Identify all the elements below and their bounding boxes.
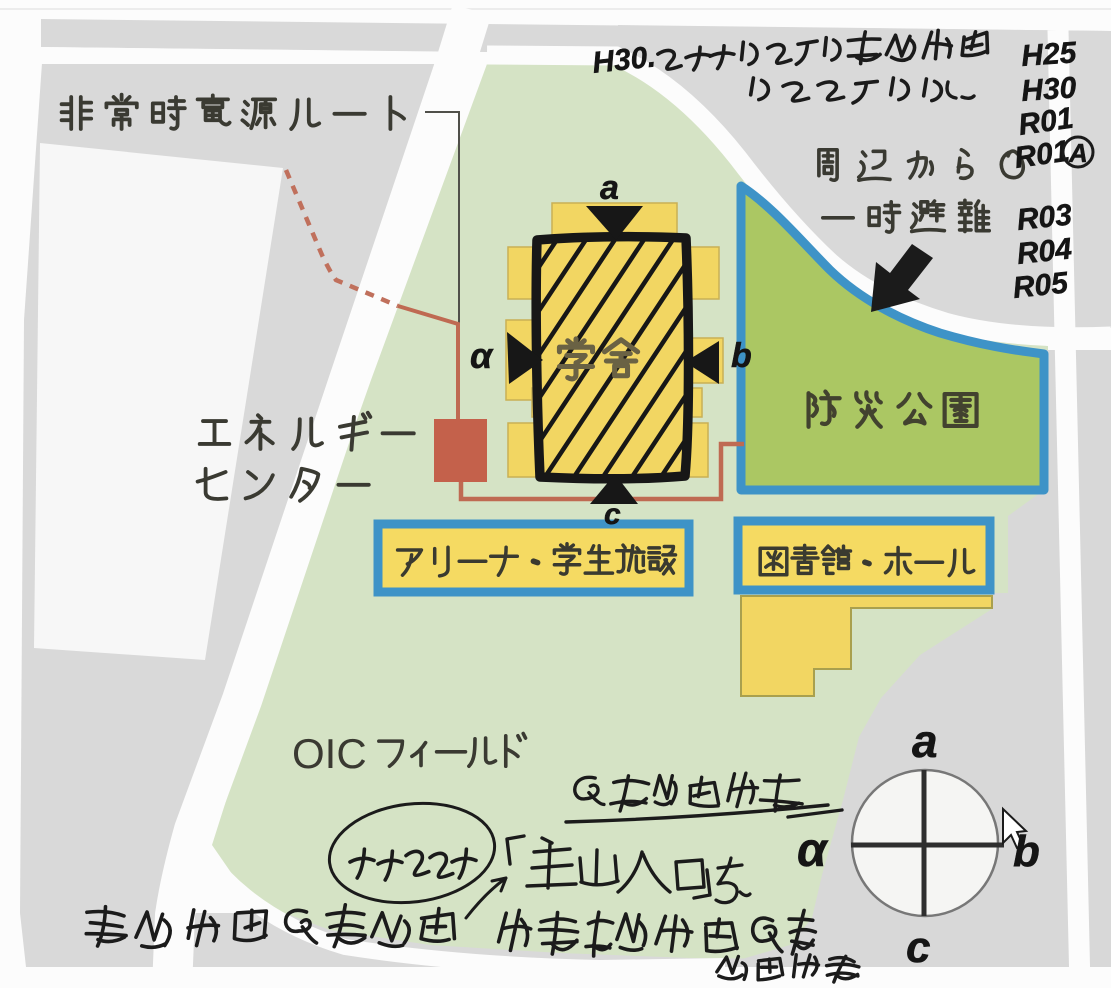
svg-text:H30.: H30. [591, 40, 657, 79]
svg-text:c: c [906, 923, 930, 972]
svg-text:R03: R03 [1015, 198, 1073, 237]
svg-text:OIC: OIC [292, 730, 367, 777]
svg-text:b: b [1013, 827, 1040, 876]
svg-text:b: b [731, 337, 752, 375]
svg-text:R05: R05 [1011, 266, 1070, 305]
svg-text:c: c [604, 498, 621, 531]
svg-text:R04: R04 [1015, 232, 1073, 271]
svg-text:α: α [797, 824, 829, 877]
svg-text:a: a [600, 169, 619, 207]
svg-text:A: A [1068, 138, 1088, 168]
svg-text:H25: H25 [1020, 36, 1079, 73]
svg-text:α: α [470, 335, 494, 376]
svg-text:a: a [912, 715, 938, 767]
